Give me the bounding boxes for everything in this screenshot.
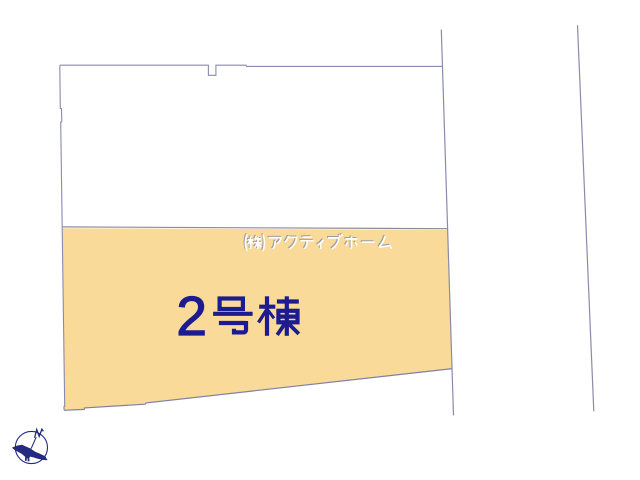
- svg-text:2: 2: [176, 285, 207, 347]
